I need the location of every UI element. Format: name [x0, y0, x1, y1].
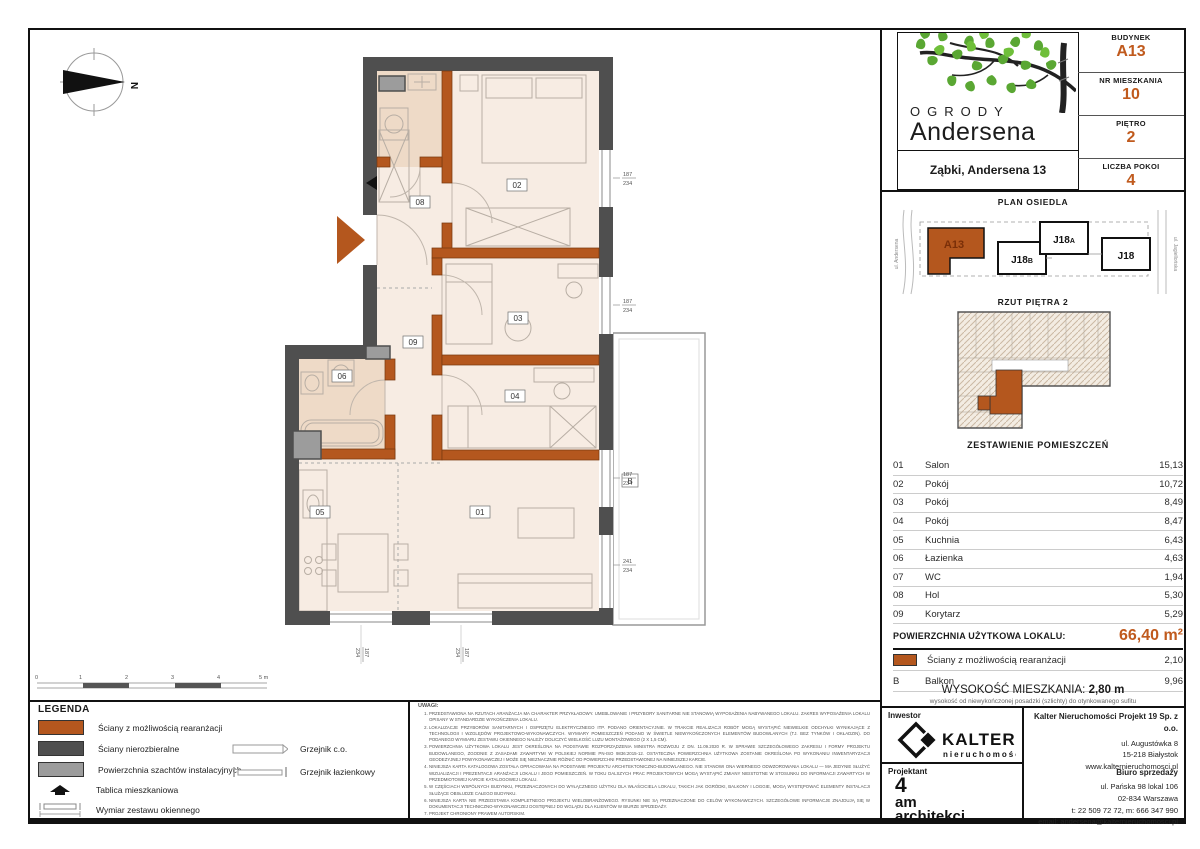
ceiling-height-block: WYSOKOŚĆ MIESZKANIA: 2,80 m wysokość od …	[882, 684, 1184, 705]
legend-item-fixed-walls: Ściany nierozbieralne	[38, 741, 179, 756]
building-a13-shape	[928, 228, 984, 274]
svg-text:08: 08	[416, 198, 425, 207]
radiator-bath-icon	[232, 767, 288, 777]
unit-info-column: BUDYNEK A13 NR MIESZKANIA 10 PIĘTRO 2 LI…	[1078, 30, 1184, 190]
svg-text:187: 187	[623, 299, 632, 305]
svg-text:241: 241	[623, 559, 632, 565]
building-a13-label: A13	[944, 239, 964, 251]
note-item: NINIEJSZA KARTA KATALOGOWA ZOSTAŁA OPRAC…	[429, 764, 870, 783]
table-row: 09Korytarz5,29	[893, 606, 1183, 625]
info-cell-rooms-count: LICZBA POKOI 4	[1078, 159, 1184, 201]
table-row: 08Hol5,30	[893, 587, 1183, 606]
table-row: 04Pokój8,47	[893, 513, 1183, 532]
scale-bar: 0 1 2 3 4 5 m	[35, 672, 275, 694]
investor-address-line: 15-218 Białystok	[1030, 749, 1178, 761]
north-label: N	[128, 82, 139, 89]
ceiling-height-note: wysokość od niewykończonej posadzki (szl…	[882, 698, 1184, 705]
svg-text:234: 234	[623, 481, 632, 487]
brand-bottom-line: Andersena	[910, 120, 1035, 145]
sales-address-line: ul. Pańska 98 lokal 106	[1030, 781, 1178, 793]
investor-label: Inwestor	[888, 711, 921, 720]
notes-title: UWAGI:	[418, 703, 870, 709]
table-row: 02Pokój10,72	[893, 476, 1183, 495]
svg-text:4: 4	[217, 675, 220, 681]
info-cell-floor: PIĘTRO 2	[1078, 116, 1184, 159]
table-row: 06Łazienka4,63	[893, 550, 1183, 569]
svg-text:187: 187	[463, 648, 469, 657]
investor-company-block: Kalter Nieruchomości Projekt 19 Sp. z o.…	[1030, 711, 1178, 773]
street-label-left: ul. Andersena	[894, 238, 900, 269]
svg-text:2: 2	[125, 675, 128, 681]
dark-wall-swatch	[38, 741, 84, 756]
notes-panel: UWAGI: PRZEDSTAWIONA NA RZUTACH ARANŻACJ…	[418, 703, 870, 819]
footer-row-divider	[880, 762, 1022, 764]
ceiling-height-value: 2,80 m	[1089, 684, 1125, 696]
sales-office-title: Biuro sprzedaży	[1030, 767, 1178, 779]
floorplan-catalog-card: { "colors":{"accent":"#c05a1d","wall_dar…	[0, 0, 1200, 849]
legend-top-divider	[28, 700, 880, 702]
note-item: PRZEDSTAWIONA NA RZUTACH ARANŻACJA MA CH…	[429, 711, 870, 724]
svg-text:01: 01	[476, 508, 485, 517]
building-j18-label: J18	[1118, 251, 1135, 262]
svg-text:06: 06	[338, 372, 347, 381]
kalter-logo-name: KALTER	[942, 730, 1016, 749]
legend-title: LEGENDA	[38, 704, 90, 715]
site-plan-map: ul. Andersena ul. Jagiellońska A13 J18B …	[890, 208, 1180, 296]
svg-text:5 m: 5 m	[259, 675, 269, 681]
svg-text:234: 234	[623, 568, 632, 574]
sales-office-block: Biuro sprzedaży ul. Pańska 98 lokal 106 …	[1030, 767, 1178, 828]
svg-text:234: 234	[623, 308, 632, 314]
legend-item-radiator-co: Grzejnik c.o.	[232, 744, 347, 754]
entrance-arrow-icon	[337, 216, 365, 264]
building-board-icon	[38, 783, 82, 796]
shaft-swatch	[38, 762, 84, 777]
notes-list: PRZEDSTAWIONA NA RZUTACH ARANŻACJA MA CH…	[418, 711, 870, 818]
sales-address-line: 02-834 Warszawa	[1030, 793, 1178, 805]
svg-text:234: 234	[354, 648, 360, 657]
table-row: 03Pokój8,49	[893, 494, 1183, 513]
table-row: 01Salon15,13	[893, 457, 1183, 476]
total-area-row: POWIERZCHNIA UŻYTKOWA LOKALU: 66,40 m²	[893, 624, 1183, 650]
note-item: W CZĘŚCIACH WSPÓLNYCH BUDYNKU, PRZEZNACZ…	[429, 784, 870, 797]
street-label-right: ul. Jagiellońska	[1172, 237, 1178, 271]
svg-text:03: 03	[514, 314, 523, 323]
project-address: Ząbki, Andersena 13	[897, 150, 1079, 190]
legend-item-radiator-bath: Grzejnik łazienkowy	[232, 767, 375, 777]
note-item: PROJEKT CHRONIONY PRAWEM AUTORSKIM.	[429, 811, 870, 817]
svg-text:1: 1	[79, 675, 82, 681]
legend-item-rearrangeable-walls: Ściany z możliwością rearanżacji	[38, 720, 222, 735]
floor-overview-map	[952, 308, 1116, 432]
footer-column-divider	[1022, 706, 1024, 822]
window-dimension-icon	[38, 802, 82, 817]
floor-plan-drawing: N	[30, 30, 880, 680]
svg-text:09: 09	[409, 338, 418, 347]
svg-text:187: 187	[623, 472, 632, 478]
svg-text:234: 234	[623, 181, 632, 187]
designer-label: Projektant	[888, 767, 927, 776]
investor-company-name: Kalter Nieruchomości Projekt 19 Sp. z o.…	[1030, 711, 1178, 736]
brand-wordmark: OGRODY Andersena	[910, 105, 1035, 145]
tree-branch-illustration	[898, 33, 1076, 113]
svg-text:0: 0	[35, 675, 38, 681]
legend-item-shafts: Powierzchnia szachtów instalacyjnych	[38, 762, 242, 777]
svg-text:04: 04	[511, 392, 520, 401]
brand-logo-box: OGRODY Andersena	[897, 32, 1079, 152]
info-cell-apartment-number: NR MIESZKANIA 10	[1078, 73, 1184, 116]
sales-email-line: email: andersena@kalternieruchomosci.pl	[1030, 816, 1178, 828]
kalter-logo: KALTER nieruchomości	[896, 720, 1016, 762]
rooms-table-title: ZESTAWIENIE POMIESZCZEŃ	[893, 440, 1183, 450]
table-row: 05Kuchnia6,43	[893, 531, 1183, 550]
legend-item-window-dim: Wymiar zestawu okiennego	[38, 802, 200, 817]
rooms-table: ZESTAWIENIE POMIESZCZEŃ 01Salon15,13 02P…	[893, 440, 1183, 692]
svg-text:02: 02	[513, 181, 522, 190]
note-item: NINIEJSZA KARTA NIE PRZEDSTAWIA KOMPLETN…	[429, 798, 870, 811]
sales-phone-line: t: 22 509 72 72, m: 666 347 990	[1030, 805, 1178, 817]
svg-text:187: 187	[623, 172, 632, 178]
info-cell-building: BUDYNEK A13	[1078, 30, 1184, 73]
svg-text:05: 05	[316, 508, 325, 517]
svg-text:3: 3	[171, 675, 174, 681]
floor-overview-title: RZUT PIĘTRA 2	[882, 297, 1184, 307]
legend-notes-divider	[408, 700, 410, 822]
svg-text:234: 234	[454, 648, 460, 657]
kalter-logo-sub: nieruchomości	[943, 750, 1016, 759]
legend-item-board: Tablica mieszkaniowa	[38, 783, 178, 796]
note-item: LOKALIZACJE PRZYBORÓW SANITARNYCH I OSPR…	[429, 725, 870, 744]
north-arrow-icon: N	[60, 48, 139, 116]
svg-text:187: 187	[363, 648, 369, 657]
total-area-value: 66,40 m²	[1119, 627, 1183, 645]
table-row: 07WC1,94	[893, 569, 1183, 588]
orange-wall-swatch	[38, 720, 84, 735]
total-area-label: POWIERZCHNIA UŻYTKOWA LOKALU:	[893, 631, 1119, 641]
rearrangeable-walls-row: Ściany z możliwością rearanżacji 2,10	[893, 650, 1183, 671]
orange-wall-swatch	[893, 654, 917, 666]
brand-top-line: OGRODY	[910, 105, 1035, 118]
ceiling-height-label: WYSOKOŚĆ MIESZKANIA:	[942, 684, 1086, 696]
radiator-co-icon	[232, 744, 288, 754]
designer-logo: 4 am architekci	[895, 776, 965, 824]
investor-address-line: ul. Augustówka 8	[1030, 738, 1178, 750]
note-item: POWIERZCHNIA UŻYTKOWA LOKALU JEST OKREŚL…	[429, 744, 870, 763]
site-plan-title: PLAN OSIEDLA	[882, 197, 1184, 207]
